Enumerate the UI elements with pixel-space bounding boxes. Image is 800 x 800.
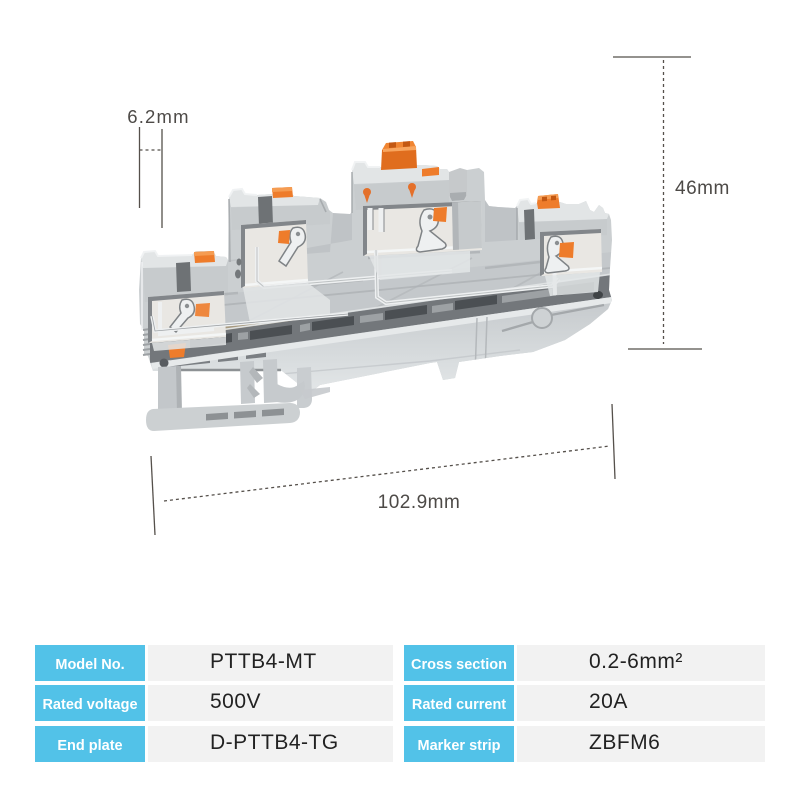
svg-text:46mm: 46mm [675, 178, 730, 199]
svg-text:102.9mm: 102.9mm [378, 492, 461, 513]
svg-text:6.2mm: 6.2mm [127, 106, 190, 127]
